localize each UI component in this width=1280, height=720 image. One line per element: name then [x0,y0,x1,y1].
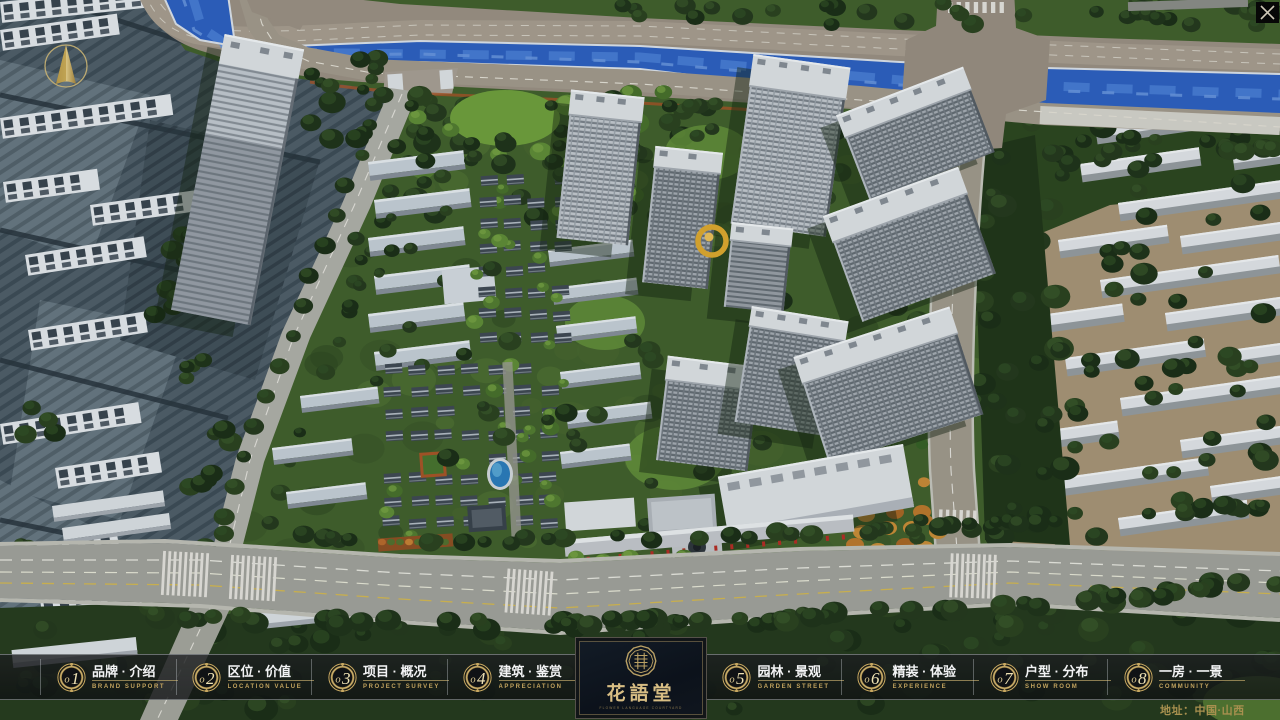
svg-text:8: 8 [1138,669,1147,688]
svg-text:o: o [64,674,69,685]
svg-text:o: o [1131,674,1136,685]
svg-text:FLOWER LANGUAGE COURTYARD: FLOWER LANGUAGE COURTYARD [599,706,682,710]
svg-text:2: 2 [206,669,215,688]
svg-text:7: 7 [1004,669,1014,688]
svg-text:花語堂: 花語堂 [606,682,675,705]
svg-text:o: o [729,674,734,685]
svg-text:o: o [470,674,475,685]
svg-text:6: 6 [871,669,880,688]
svg-text:o: o [199,674,204,685]
svg-text:3: 3 [341,669,351,688]
svg-text:5: 5 [736,669,745,688]
svg-text:o: o [864,674,869,685]
svg-text:o: o [335,674,340,685]
svg-text:o: o [997,674,1002,685]
svg-text:1: 1 [71,669,80,688]
svg-text:4: 4 [477,669,486,688]
